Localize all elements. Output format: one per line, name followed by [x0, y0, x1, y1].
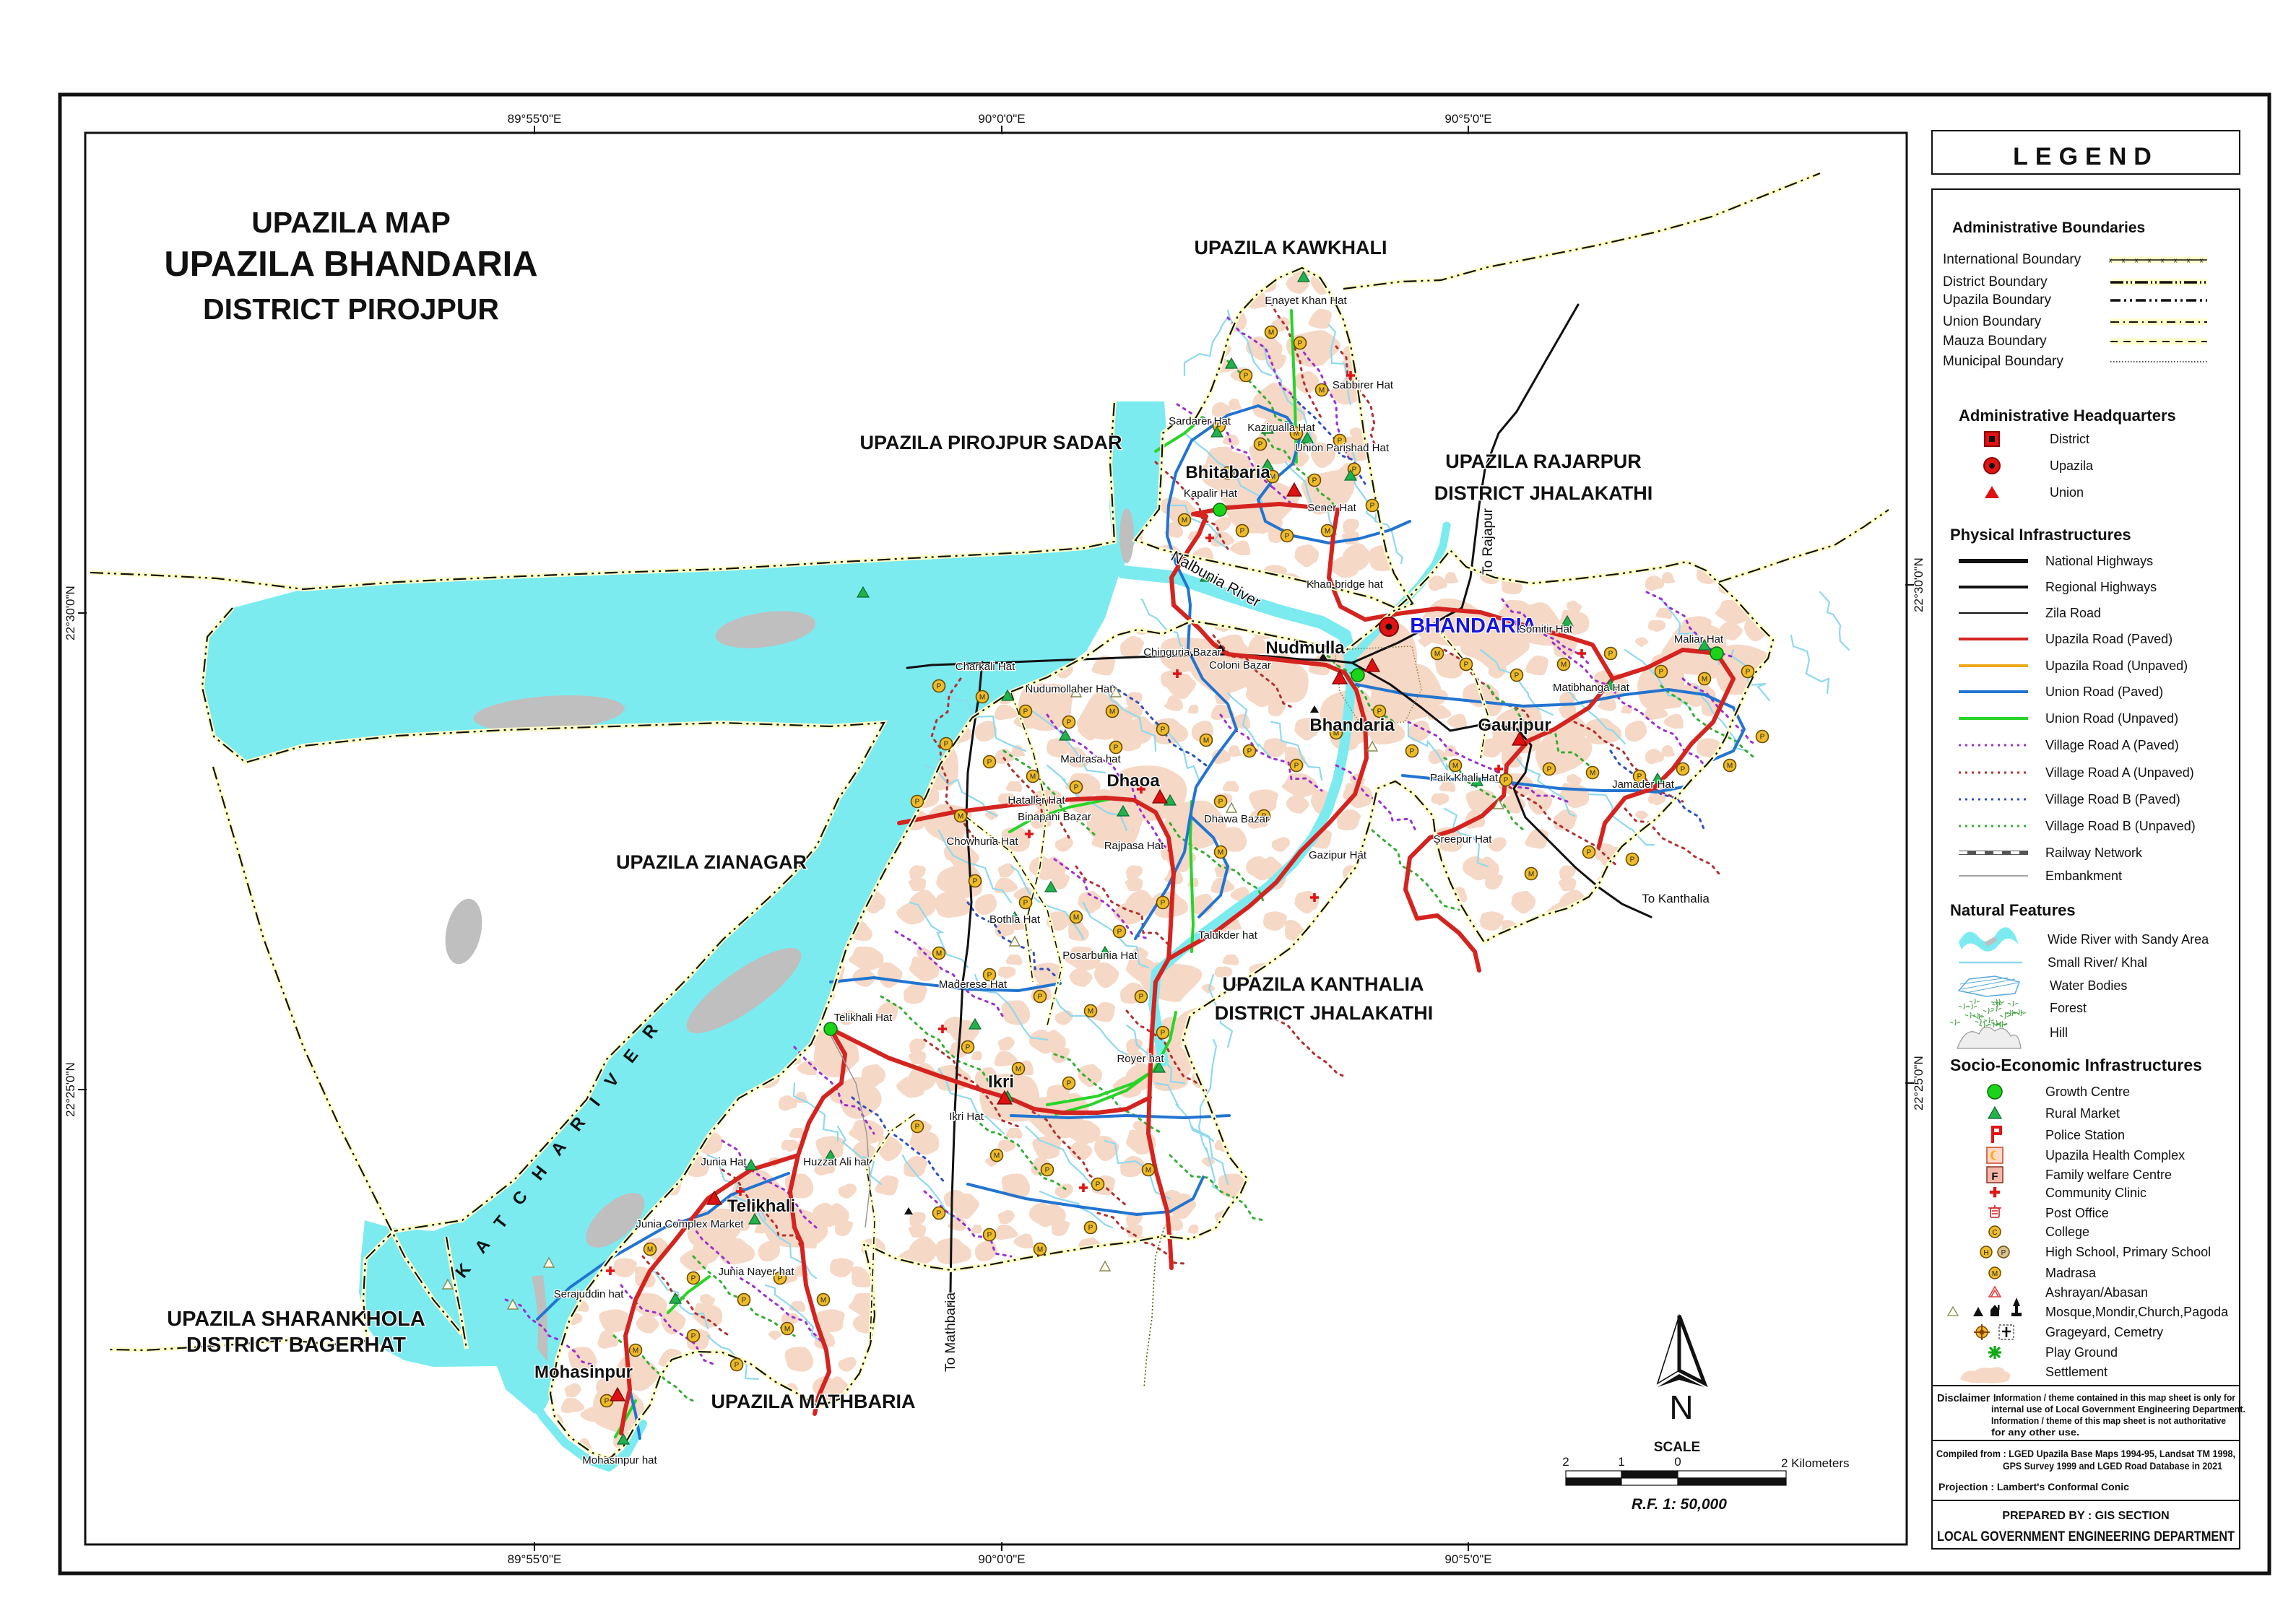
- svg-text:C: C: [1992, 1229, 1997, 1237]
- svg-text:Upazila Road (Unpaved): Upazila Road (Unpaved): [2045, 659, 2188, 673]
- svg-text:P: P: [1410, 748, 1415, 756]
- svg-text:2 Kilometers: 2 Kilometers: [1781, 1456, 1849, 1470]
- svg-text:PREPARED BY : GIS SECTION: PREPARED BY : GIS SECTION: [2002, 1510, 2169, 1522]
- svg-text:M: M: [1030, 773, 1036, 781]
- svg-text:M: M: [784, 1326, 790, 1334]
- svg-text:UPAZILA KAWKHALI: UPAZILA KAWKHALI: [1195, 237, 1387, 258]
- svg-text:P: P: [1096, 1181, 1101, 1189]
- svg-text:Settlement: Settlement: [2045, 1365, 2107, 1379]
- svg-text:P: P: [1377, 708, 1382, 716]
- svg-text:P: P: [1370, 503, 1375, 510]
- svg-text:To Kanthalia: To Kanthalia: [1642, 892, 1710, 905]
- svg-text:P: P: [1074, 784, 1079, 792]
- svg-text:Village Road A (Paved): Village Road A (Paved): [2045, 738, 2179, 752]
- svg-text:H: H: [1983, 1249, 1988, 1257]
- svg-text:BHANDARIA: BHANDARIA: [1410, 614, 1537, 638]
- svg-text:P: P: [987, 759, 992, 767]
- svg-text:M: M: [1073, 914, 1079, 922]
- svg-text:Small River/ Khal: Small River/ Khal: [2048, 955, 2147, 970]
- svg-text:N: N: [1669, 1389, 1693, 1426]
- svg-text:Grageyard, Cemetry: Grageyard, Cemetry: [2045, 1325, 2163, 1339]
- svg-text:P: P: [1294, 762, 1299, 770]
- svg-text:M: M: [1203, 737, 1209, 745]
- svg-text:P: P: [735, 1362, 740, 1370]
- svg-text:Posarbunia Hat: Posarbunia Hat: [1062, 949, 1138, 962]
- svg-text:P: P: [966, 1044, 971, 1052]
- svg-text:x: x: [2187, 257, 2191, 264]
- svg-text:R.F. 1: 50,000: R.F. 1: 50,000: [1632, 1496, 1727, 1513]
- svg-text:Nudmulla: Nudmulla: [1265, 638, 1345, 658]
- svg-text:P: P: [1139, 994, 1144, 1001]
- svg-text:Union Road (Paved): Union Road (Paved): [2045, 685, 2163, 699]
- svg-text:90°5'0"E: 90°5'0"E: [1444, 1552, 1491, 1566]
- svg-text:To Mathbaria: To Mathbaria: [943, 1292, 958, 1372]
- svg-text:Junia Hat: Junia Hat: [701, 1156, 747, 1168]
- svg-text:Forest: Forest: [2050, 1001, 2087, 1015]
- svg-text:Information / theme of this ma: Information / theme of this map sheet is…: [1991, 1415, 2226, 1426]
- svg-text:Administrative Boundaries: Administrative Boundaries: [1952, 220, 2145, 236]
- svg-text:Bothla Hat: Bothla Hat: [989, 913, 1041, 926]
- svg-text:P: P: [1630, 856, 1635, 864]
- svg-text:Police Station: Police Station: [2045, 1128, 2125, 1142]
- svg-text:P: P: [1587, 849, 1592, 857]
- svg-text:M: M: [647, 1246, 653, 1254]
- svg-text:LEGEND: LEGEND: [2013, 143, 2159, 170]
- svg-text:x: x: [2148, 257, 2152, 264]
- svg-text:22°30'0"N: 22°30'0"N: [64, 586, 77, 640]
- svg-text:Socio-Economic Infrastructures: Socio-Economic Infrastructures: [1950, 1056, 2202, 1074]
- svg-text:M: M: [1452, 762, 1458, 770]
- svg-text:Sardarer Hat: Sardarer Hat: [1169, 415, 1231, 427]
- svg-text:College: College: [2045, 1225, 2089, 1239]
- svg-text:M: M: [1528, 871, 1534, 879]
- svg-text:P: P: [937, 683, 942, 691]
- svg-text:P: P: [1285, 533, 1290, 541]
- svg-text:Community Clinic: Community Clinic: [2045, 1186, 2146, 1200]
- svg-text:P: P: [1218, 799, 1223, 807]
- svg-text:Madrasa: Madrasa: [2045, 1266, 2097, 1280]
- svg-text:P: P: [1038, 994, 1043, 1001]
- svg-text:Mohasinpur: Mohasinpur: [534, 1363, 633, 1382]
- svg-text:P: P: [1298, 340, 1303, 348]
- svg-text:Gazipur Hat: Gazipur Hat: [1309, 849, 1367, 861]
- svg-text:Dhawa Bazar: Dhawa Bazar: [1204, 813, 1269, 825]
- svg-text:Rajpasa Hat: Rajpasa Hat: [1104, 840, 1164, 852]
- svg-text:M: M: [1992, 1270, 1998, 1278]
- svg-text:Village Road B (Paved): Village Road B (Paved): [2045, 792, 2180, 807]
- svg-text:P: P: [987, 1232, 992, 1240]
- svg-text:M: M: [936, 950, 942, 958]
- svg-text:Serajuddin hat: Serajuddin hat: [554, 1288, 625, 1300]
- svg-text:Post Office: Post Office: [2045, 1206, 2109, 1220]
- svg-text:for any other use.: for any other use.: [1991, 1427, 2079, 1438]
- svg-text:22°30'0"N: 22°30'0"N: [1912, 557, 1925, 612]
- svg-text:M: M: [820, 1297, 826, 1305]
- svg-text:P: P: [1608, 651, 1613, 659]
- svg-text:P: P: [915, 1124, 920, 1131]
- svg-text:Mosque,Mondir,Church,Pagoda: Mosque,Mondir,Church,Pagoda: [2045, 1305, 2229, 1319]
- svg-text:1: 1: [1618, 1455, 1624, 1469]
- svg-text:Junia Nayer hat: Junia Nayer hat: [718, 1266, 794, 1278]
- svg-text:UPAZILA MAP: UPAZILA MAP: [251, 206, 451, 239]
- svg-text:P: P: [1088, 1225, 1093, 1233]
- svg-text:District Boundary: District Boundary: [1943, 274, 2048, 290]
- svg-text:x: x: [2122, 257, 2126, 264]
- svg-text:P: P: [1067, 1080, 1072, 1088]
- svg-text:P: P: [915, 799, 920, 807]
- svg-text:UPAZILA MATHBARIA: UPAZILA MATHBARIA: [711, 1391, 916, 1412]
- svg-text:F: F: [1991, 1170, 1998, 1183]
- svg-text:0: 0: [1674, 1455, 1681, 1469]
- svg-text:M: M: [1561, 661, 1567, 669]
- svg-text:Union Road (Unpaved): Union Road (Unpaved): [2045, 711, 2178, 726]
- svg-text:Sreepur Hat: Sreepur Hat: [1434, 833, 1493, 846]
- svg-text:Embankment: Embankment: [2045, 869, 2122, 883]
- svg-text:Binapani Bazar: Binapani Bazar: [1018, 811, 1091, 823]
- svg-text:Play Ground: Play Ground: [2045, 1345, 2118, 1360]
- svg-text:internal use of Local Governme: internal use of Local Government Enginee…: [1991, 1404, 2245, 1414]
- svg-text:P: P: [1547, 766, 1552, 774]
- svg-text:90°0'0"E: 90°0'0"E: [978, 1552, 1025, 1566]
- svg-text:P: P: [691, 1275, 696, 1283]
- svg-text:M: M: [1434, 651, 1440, 659]
- svg-text:Family welfare Centre: Family welfare Centre: [2045, 1168, 2172, 1182]
- svg-text:P: P: [1681, 766, 1686, 774]
- svg-text:M: M: [979, 694, 985, 702]
- svg-text:x: x: [2135, 257, 2139, 264]
- svg-text:Junia Complex Market: Junia Complex Market: [636, 1218, 744, 1230]
- svg-text:Sabbirer Hat: Sabbirer Hat: [1333, 379, 1394, 391]
- svg-text:Khan bridge hat: Khan bridge hat: [1307, 578, 1384, 591]
- svg-text:M: M: [1182, 517, 1187, 525]
- svg-text:M: M: [1727, 762, 1733, 770]
- svg-text:Paik Khali Hat: Paik Khali Hat: [1430, 772, 1499, 784]
- svg-text:Wide River with Sandy Area: Wide River with Sandy Area: [2048, 932, 2209, 947]
- svg-text:P: P: [1067, 719, 1072, 727]
- svg-text:Huzzat Ali hat: Huzzat Ali hat: [803, 1156, 870, 1168]
- svg-text:M: M: [1319, 387, 1325, 395]
- svg-text:Physical Infrastructures: Physical Infrastructures: [1950, 526, 2131, 544]
- svg-text:P: P: [1023, 708, 1028, 716]
- svg-text:Union Boundary: Union Boundary: [1943, 314, 2042, 329]
- svg-text:M: M: [994, 1152, 1000, 1160]
- svg-text:UPAZILA KANTHALIA: UPAZILA KANTHALIA: [1223, 973, 1424, 995]
- svg-text:P: P: [1023, 900, 1028, 908]
- svg-text:P: P: [1045, 1167, 1050, 1175]
- svg-text:P: P: [973, 878, 978, 886]
- svg-text:Charkali Hat: Charkali Hat: [956, 661, 1015, 673]
- svg-text:P: P: [1117, 929, 1122, 936]
- svg-text:89°55'0"E: 89°55'0"E: [508, 112, 562, 126]
- svg-text:P: P: [691, 1333, 696, 1341]
- svg-text:Administrative Headquarters: Administrative Headquarters: [1959, 407, 2176, 425]
- svg-text:Somitir Hat: Somitir Hat: [1519, 623, 1573, 635]
- svg-text:P: P: [742, 1297, 747, 1305]
- svg-text:Coloni Bazar: Coloni Bazar: [1209, 659, 1271, 672]
- svg-text:89°55'0"E: 89°55'0"E: [508, 1552, 562, 1566]
- svg-text:P: P: [1258, 441, 1263, 449]
- svg-text:Maderese Hat: Maderese Hat: [939, 978, 1008, 991]
- svg-text:P: P: [1161, 726, 1166, 734]
- svg-text:Ashrayan/Abasan: Ashrayan/Abasan: [2045, 1285, 2148, 1300]
- svg-text:UPAZILA RAJARPUR: UPAZILA RAJARPUR: [1445, 451, 1642, 472]
- svg-text:To Rajapur: To Rajapur: [1481, 508, 1496, 575]
- svg-text:Mauza Boundary: Mauza Boundary: [1943, 334, 2047, 349]
- svg-text:High School, Primary School: High School, Primary School: [2045, 1245, 2211, 1259]
- svg-text:Rural Market: Rural Market: [2045, 1106, 2120, 1121]
- svg-text:P: P: [1114, 744, 1119, 752]
- svg-text:90°5'0"E: 90°5'0"E: [1444, 112, 1491, 126]
- svg-text:P: P: [944, 741, 949, 749]
- svg-text:Upazila Boundary: Upazila Boundary: [1943, 292, 2051, 308]
- svg-text:P: P: [1464, 661, 1469, 669]
- svg-text:Water Bodies: Water Bodies: [2050, 978, 2127, 993]
- svg-text:22°25'0"N: 22°25'0"N: [1912, 1056, 1925, 1111]
- svg-text:M: M: [1590, 770, 1595, 778]
- svg-text:Mohasinpur hat: Mohasinpur hat: [582, 1454, 657, 1466]
- svg-text:P: P: [1515, 672, 1520, 680]
- svg-text:Madrasa hat: Madrasa hat: [1060, 753, 1121, 765]
- svg-text:Chinguria Bazar: Chinguria Bazar: [1143, 646, 1221, 659]
- svg-text:M: M: [1270, 474, 1275, 482]
- svg-text:P: P: [1659, 669, 1664, 677]
- svg-text:Kazirualla Hat: Kazirualla Hat: [1247, 422, 1315, 434]
- svg-text:UPAZILA SHARANKHOLA: UPAZILA SHARANKHOLA: [167, 1308, 425, 1331]
- svg-text:Regional Highways: Regional Highways: [2045, 580, 2157, 594]
- svg-text:Railway Network: Railway Network: [2045, 846, 2143, 860]
- svg-text:Information / theme contained: Information / theme contained in this ma…: [1993, 1392, 2235, 1403]
- svg-text:Compiled from : LGED Upazila B: Compiled from : LGED Upazila Base Maps 1…: [1936, 1448, 2235, 1459]
- svg-text:M: M: [1109, 708, 1115, 716]
- svg-text:x: x: [2161, 257, 2165, 264]
- svg-text:M: M: [633, 1347, 638, 1355]
- svg-text:M: M: [1088, 1008, 1093, 1016]
- svg-text:Maliar Hat: Maliar Hat: [1674, 633, 1724, 646]
- svg-text:Bhandaria: Bhandaria: [1309, 716, 1395, 735]
- svg-text:Upazila Road (Paved): Upazila Road (Paved): [2045, 632, 2172, 646]
- svg-text:Telikhali Hat: Telikhali Hat: [834, 1012, 893, 1024]
- svg-text:UPAZILA BHANDARIA: UPAZILA BHANDARIA: [164, 245, 537, 284]
- svg-text:International Boundary: International Boundary: [1943, 252, 2081, 267]
- svg-text:National Highways: National Highways: [2045, 554, 2153, 568]
- svg-text:Telikhali: Telikhali: [727, 1196, 795, 1216]
- svg-text:P: P: [1161, 1030, 1166, 1038]
- svg-text:M: M: [1268, 329, 1274, 337]
- svg-text:Nudumollaher Hat: Nudumollaher Hat: [1026, 683, 1114, 695]
- svg-text:P: P: [1746, 669, 1751, 677]
- svg-text:Kapalir Hat: Kapalir Hat: [1184, 487, 1238, 500]
- svg-text:UPAZILA ZIANAGAR: UPAZILA ZIANAGAR: [616, 851, 807, 873]
- svg-text:Village Road B (Unpaved): Village Road B (Unpaved): [2045, 819, 2196, 833]
- svg-text:Sener Hat: Sener Hat: [1307, 502, 1356, 514]
- svg-text:Gauripur: Gauripur: [1478, 716, 1551, 735]
- svg-text:Projection : Lambert's C: Projection : Lambert's Conformal Conic: [1938, 1481, 2129, 1492]
- svg-text:Enayet Khan Hat: Enayet Khan Hat: [1265, 295, 1347, 307]
- svg-text:P: P: [1504, 777, 1509, 785]
- svg-text:Chowhuria Hat: Chowhuria Hat: [946, 835, 1018, 848]
- svg-text:Ikri Hat: Ikri Hat: [949, 1111, 984, 1123]
- svg-text:Municipal Boundary: Municipal Boundary: [1943, 354, 2063, 369]
- svg-text:DISTRICT PIROJPUR: DISTRICT PIROJPUR: [203, 292, 499, 326]
- svg-text:Hataller Hat: Hataller Hat: [1008, 794, 1065, 807]
- svg-text:90°0'0"E: 90°0'0"E: [978, 112, 1025, 126]
- svg-text:Talukder hat: Talukder hat: [1198, 929, 1258, 942]
- svg-text:DISTRICT JHALAKATHI: DISTRICT JHALAKATHI: [1434, 482, 1652, 504]
- svg-text:M: M: [958, 813, 963, 821]
- svg-text:Dhaoa: Dhaoa: [1106, 771, 1160, 791]
- svg-text:M: M: [1037, 1246, 1043, 1254]
- svg-text:DISTRICT BAGERHAT: DISTRICT BAGERHAT: [186, 1334, 406, 1357]
- svg-text:Zila Road: Zila Road: [2045, 606, 2101, 620]
- svg-text:DISTRICT JHALAKATHI: DISTRICT JHALAKATHI: [1215, 1002, 1433, 1024]
- svg-text:P: P: [1244, 373, 1249, 381]
- svg-text:Upazila: Upazila: [2050, 459, 2094, 473]
- svg-text:x: x: [2174, 257, 2178, 264]
- svg-text:Hill: Hill: [2050, 1025, 2068, 1040]
- svg-text:Upazila Health Complex: Upazila Health Complex: [2045, 1148, 2185, 1162]
- svg-text:2: 2: [1562, 1455, 1569, 1469]
- svg-text:P: P: [1247, 748, 1252, 756]
- svg-text:GPS Survey 1999 and LGED Road: GPS Survey 1999 and LGED Road Database i…: [2003, 1460, 2222, 1472]
- svg-text:UPAZILA PIROJPUR SADAR: UPAZILA PIROJPUR SADAR: [859, 432, 1122, 453]
- svg-text:District: District: [2050, 432, 2089, 446]
- svg-text:22°25'0"N: 22°25'0"N: [64, 1062, 77, 1117]
- svg-text:M: M: [1145, 1167, 1151, 1175]
- svg-text:P: P: [2001, 1249, 2006, 1257]
- svg-text:Growth Centre: Growth Centre: [2045, 1085, 2130, 1099]
- svg-text:Union Parishad Hat: Union Parishad Hat: [1295, 442, 1390, 454]
- svg-text:Matibhanga Hat: Matibhanga Hat: [1553, 682, 1630, 694]
- svg-text:SCALE: SCALE: [1654, 1440, 1700, 1455]
- svg-text:P: P: [1760, 734, 1765, 742]
- svg-text:P: P: [1240, 528, 1245, 536]
- svg-text:P: P: [1312, 477, 1317, 485]
- svg-text:M: M: [1325, 528, 1330, 536]
- svg-text:Disclaimer :: Disclaimer :: [1937, 1393, 1996, 1404]
- svg-text:LOCAL GOVERNMENT ENGINEERING D: LOCAL GOVERNMENT ENGINEERING DEPARTMENT: [1937, 1529, 2235, 1544]
- svg-text:x: x: [2200, 257, 2204, 264]
- svg-text:Union: Union: [2050, 485, 2084, 500]
- svg-text:M: M: [1015, 1066, 1021, 1074]
- svg-text:Bhitabaria: Bhitabaria: [1185, 463, 1270, 482]
- svg-text:Ikri: Ikri: [988, 1072, 1014, 1092]
- svg-text:P: P: [937, 1210, 942, 1218]
- svg-text:Village Road A (Unpaved): Village Road A (Unpaved): [2045, 765, 2194, 780]
- svg-text:x: x: [2109, 257, 2113, 264]
- svg-text:P: P: [605, 1398, 610, 1406]
- svg-text:Royer hat: Royer hat: [1117, 1053, 1164, 1065]
- svg-text:M: M: [1218, 849, 1223, 857]
- svg-text:P: P: [1161, 900, 1166, 908]
- svg-text:M: M: [1702, 676, 1707, 684]
- svg-text:Natural Features: Natural Features: [1950, 901, 2076, 919]
- svg-text:Jamader Hat: Jamader Hat: [1612, 778, 1675, 791]
